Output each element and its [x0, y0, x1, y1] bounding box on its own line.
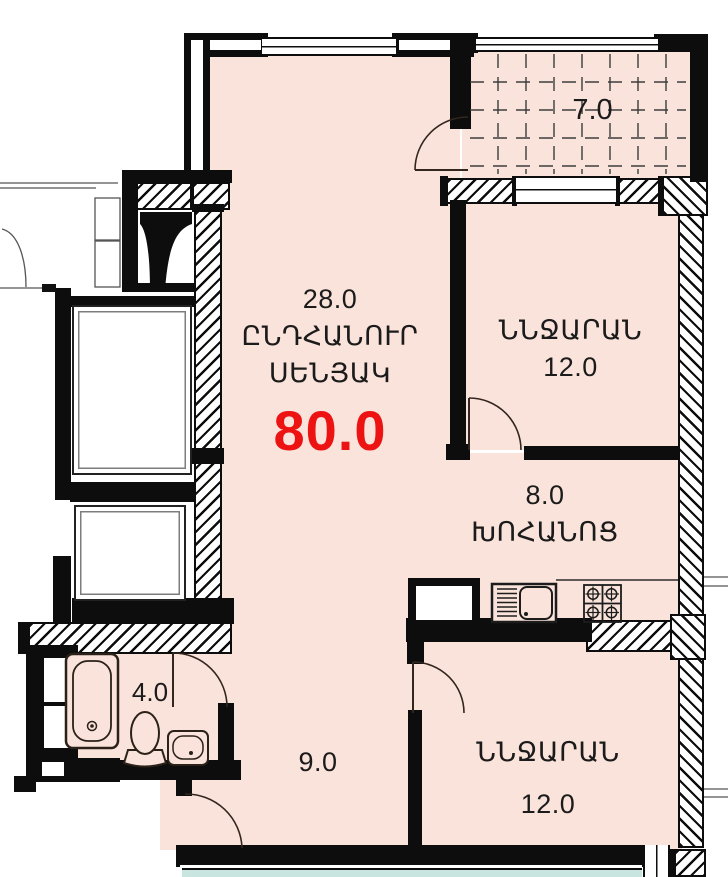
bedroom-bottom-door — [413, 662, 464, 713]
exterior-sill-ticks — [704, 577, 728, 797]
kitchen-name: ԽՈՀԱՆՈՑ — [465, 514, 625, 551]
neighbor-door-arc — [2, 229, 26, 287]
bedroom-top-area: 12.0 — [488, 349, 653, 386]
bedroom-top-label: ՆՆՋԱՐԱՆ 12.0 — [488, 312, 653, 386]
living-room-label: 28.0 ԸՆԴՀԱՆՈՒՐ ՍԵՆՅԱԿ 80.0 — [230, 281, 430, 462]
hallway-area: 9.0 — [298, 747, 337, 777]
bedroom-top-name: ՆՆՋԱՐԱՆ — [488, 312, 653, 349]
balcony-area: 7.0 — [572, 94, 612, 126]
bathroom-label: 4.0 — [115, 676, 185, 708]
neighbor-outline-lines — [0, 183, 120, 288]
floor-plan-canvas: 28.0 ԸՆԴՀԱՆՈՒՐ ՍԵՆՅԱԿ 80.0 ՆՆՋԱՐԱՆ 12.0 … — [0, 0, 728, 877]
bedroom-top-door — [469, 398, 521, 450]
entrance-door — [185, 794, 242, 848]
bedroom-bottom-label: ՆՆՋԱՐԱՆ 12.0 — [464, 734, 632, 823]
kitchen-area: 8.0 — [465, 477, 625, 514]
balcony-door — [415, 117, 468, 170]
kitchen-sink — [492, 584, 556, 622]
wall-funnel-detail — [140, 212, 192, 290]
toilet — [124, 712, 166, 767]
bathroom-area: 4.0 — [132, 677, 168, 707]
living-area-value: 28.0 — [230, 281, 430, 318]
bedroom-bottom-area: 12.0 — [464, 786, 632, 823]
stove — [584, 585, 621, 622]
hallway-label: 9.0 — [282, 744, 354, 781]
neighbor-wall-tick — [42, 284, 56, 292]
bathtub — [66, 654, 118, 748]
total-area-value: 80.0 — [230, 400, 430, 462]
bedroom-bottom-name: ՆՆՋԱՐԱՆ — [464, 734, 632, 771]
living-name-line1: ԸՆԴՀԱՆՈՒՐ — [230, 318, 430, 355]
living-name-line2: ՍԵՆՅԱԿ — [230, 355, 430, 392]
kitchen-label: 8.0 ԽՈՀԱՆՈՑ — [465, 477, 625, 551]
wash-basin — [168, 731, 208, 765]
balcony-label: 7.0 — [545, 94, 640, 126]
